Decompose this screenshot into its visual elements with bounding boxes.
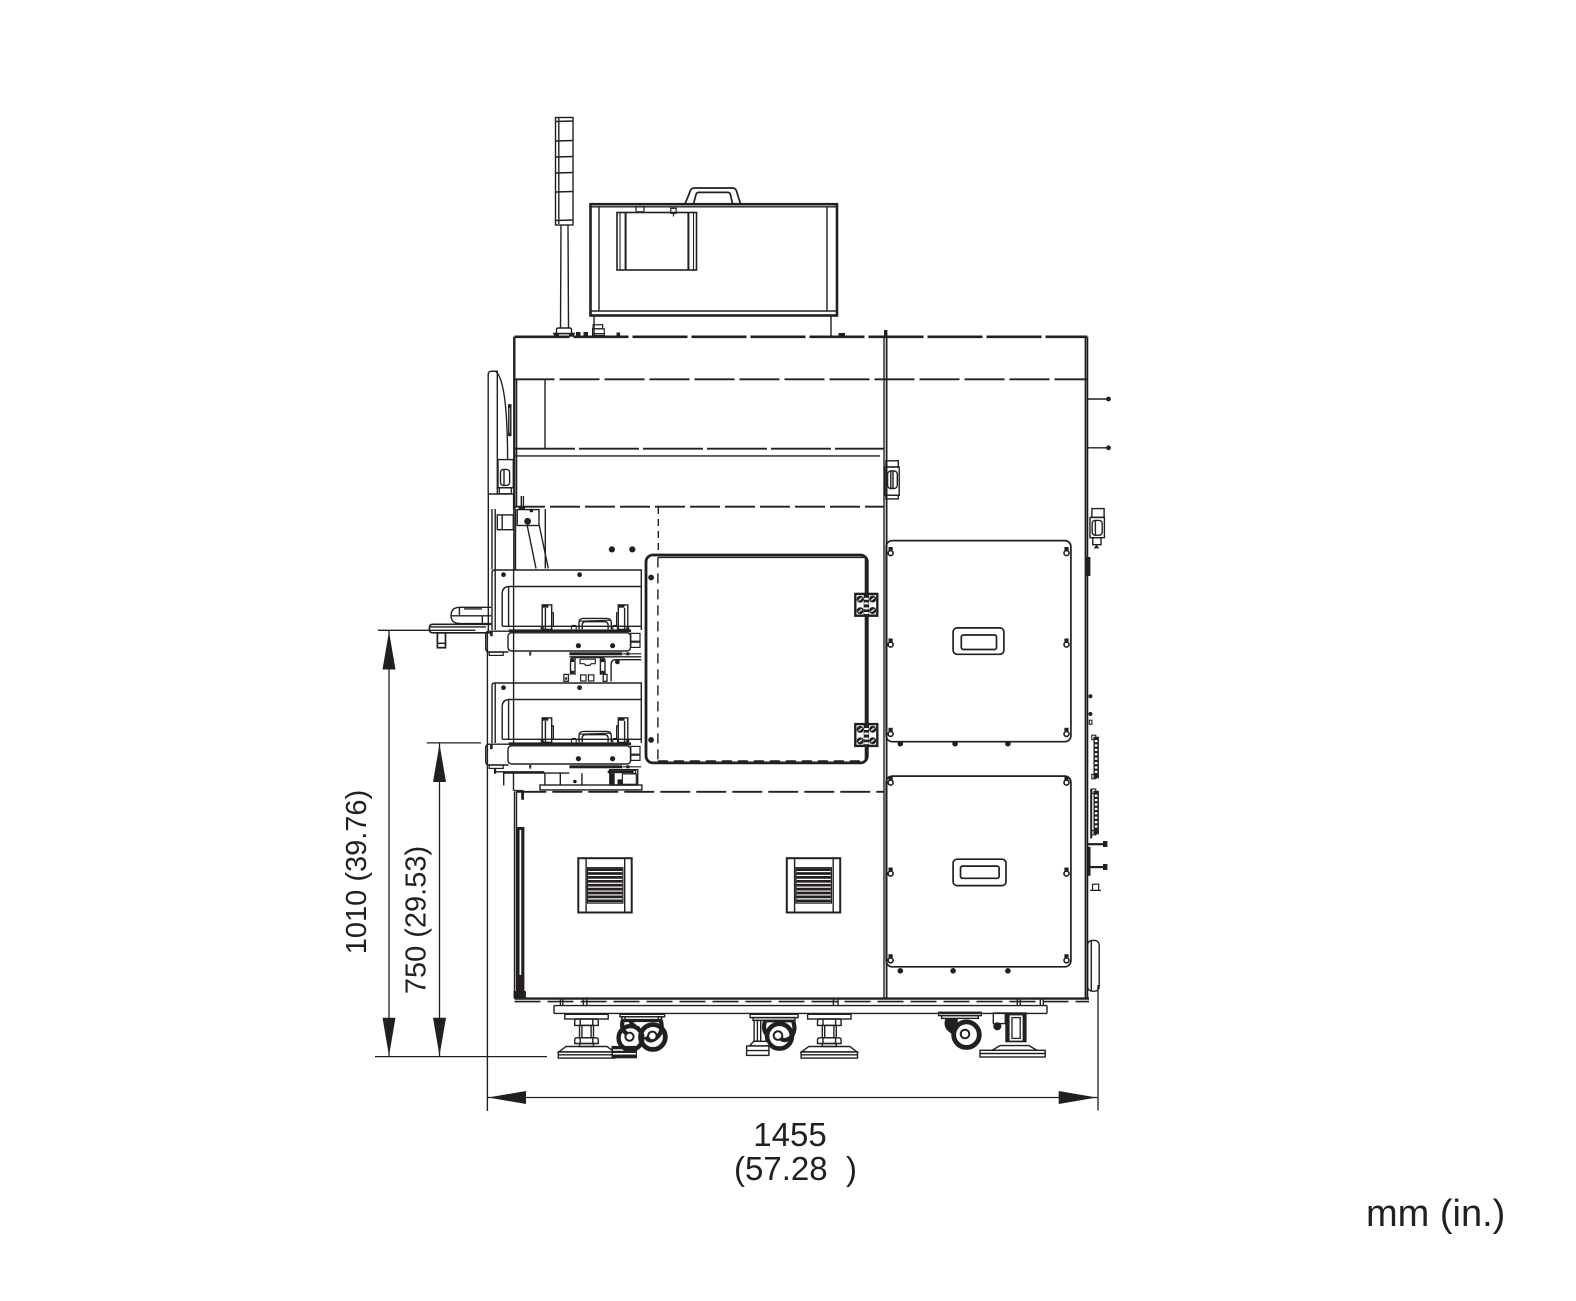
svg-text:1455: 1455 — [753, 1116, 826, 1153]
svg-text:mm (in.): mm (in.) — [1366, 1193, 1505, 1235]
svg-text:750 (29.53): 750 (29.53) — [401, 846, 433, 994]
svg-text:(57.28 ): (57.28 ) — [734, 1150, 857, 1187]
svg-text:1010 (39.76): 1010 (39.76) — [341, 790, 373, 954]
